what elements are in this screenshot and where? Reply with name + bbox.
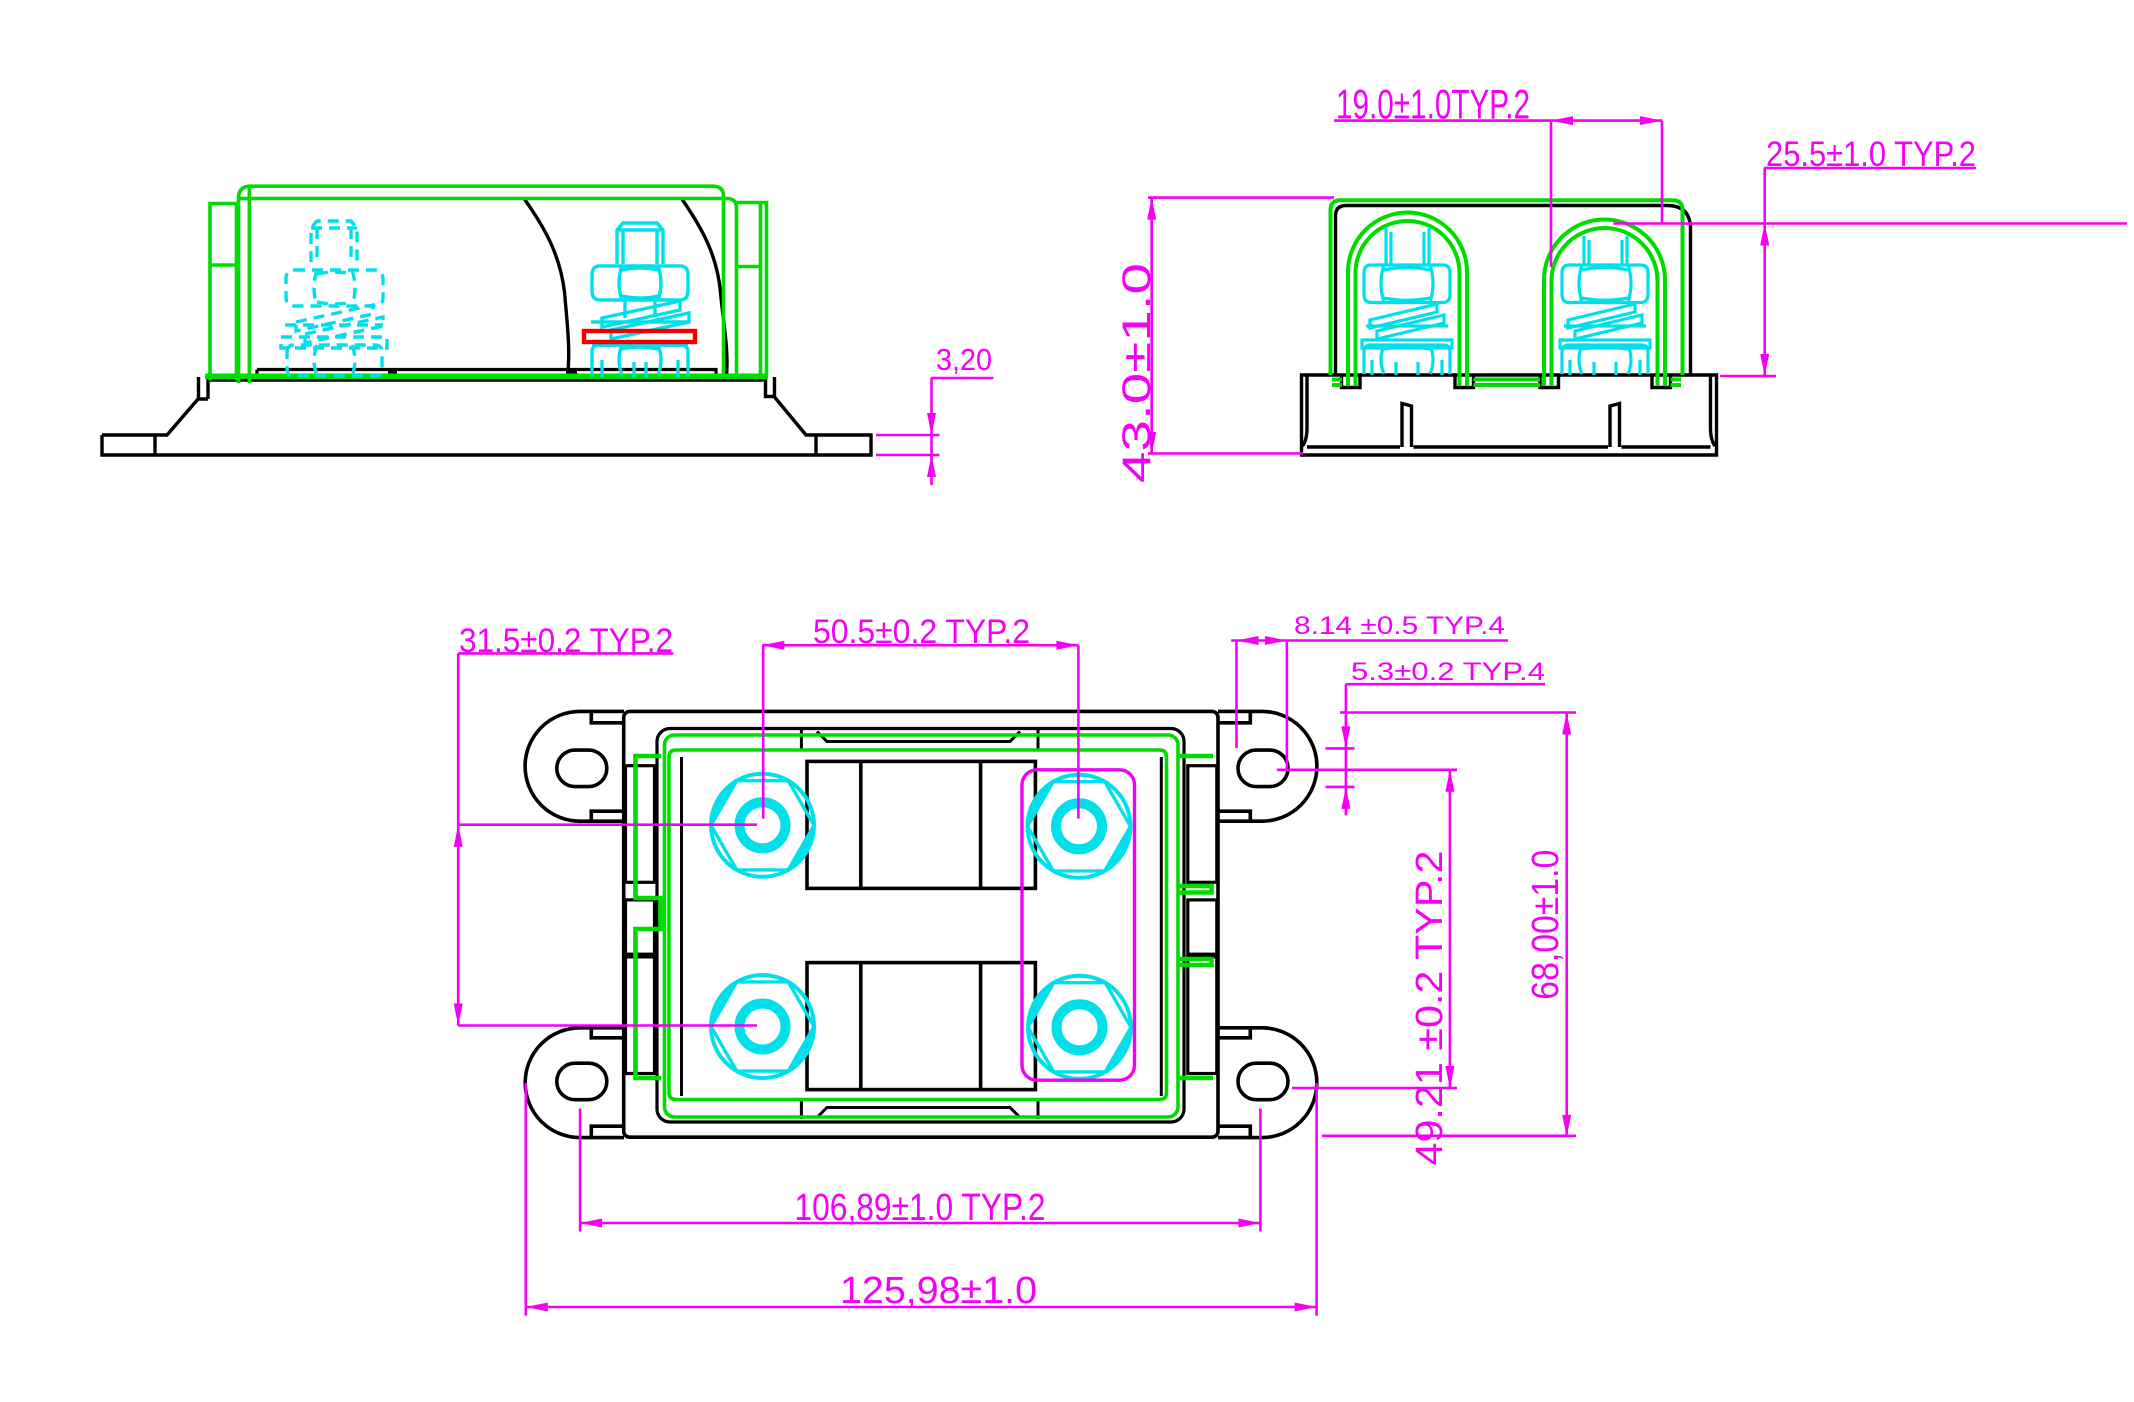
svg-text:25.5±1.0 TYP.2: 25.5±1.0 TYP.2 — [1766, 135, 1976, 174]
svg-text:19.0±1.0TYP.2: 19.0±1.0TYP.2 — [1336, 81, 1530, 128]
svg-text:5.3±0.2 TYP.4: 5.3±0.2 TYP.4 — [1351, 658, 1545, 686]
svg-text:106,89±1.0 TYP.2: 106,89±1.0 TYP.2 — [795, 1187, 1046, 1229]
svg-text:3,20: 3,20 — [936, 342, 992, 377]
svg-text:125,98±1.0: 125,98±1.0 — [840, 1270, 1037, 1312]
svg-text:8.14 ±0.5 TYP.4: 8.14 ±0.5 TYP.4 — [1294, 612, 1505, 640]
svg-text:50.5±0.2 TYP.2: 50.5±0.2 TYP.2 — [813, 613, 1030, 651]
svg-text:49.21 ±0.2 TYP.2: 49.21 ±0.2 TYP.2 — [1409, 851, 1451, 1166]
svg-text:31.5±0.2 TYP.2: 31.5±0.2 TYP.2 — [459, 622, 673, 660]
svg-text:43.0±1.0: 43.0±1.0 — [1115, 263, 1159, 483]
svg-text:68,00±1.0: 68,00±1.0 — [1525, 850, 1567, 1000]
